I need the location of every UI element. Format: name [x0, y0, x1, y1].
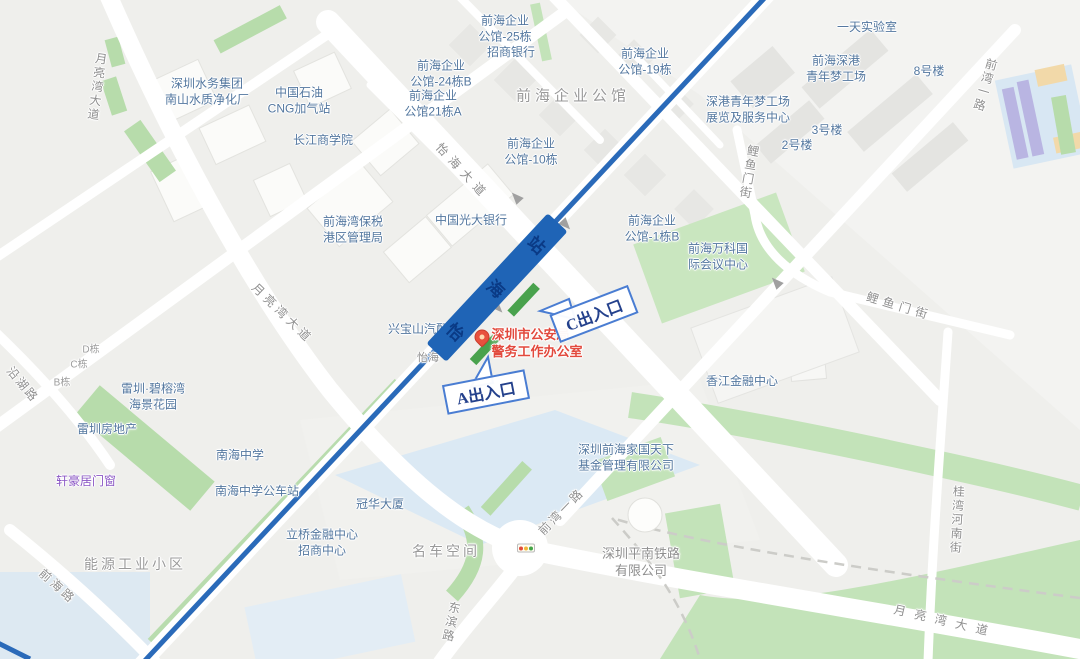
poi-dream-factory: 前海深港青年梦工场 [806, 53, 866, 84]
poi-everbright-bank: 中国光大银行 [435, 213, 507, 229]
poi-ckgsb: 长江商学院 [293, 133, 353, 149]
poi-pingnan-railway: 深圳平南铁路有限公司 [602, 546, 680, 580]
poi-bldg8: 8号楼 [914, 64, 945, 80]
poi-xuanhao: 轩豪居门窗 [56, 474, 116, 490]
poi-lab: 一天实验室 [837, 20, 897, 36]
poi-gongguan-main: 前海企业公馆 [516, 86, 630, 106]
poi-gongguan1b: 前海企业公馆-1栋B [625, 213, 680, 244]
poi-guanhua: 冠华大厦 [356, 497, 404, 513]
poi-waterworks: 深圳水务集团南山水质净化厂 [165, 76, 249, 107]
poi-gongguan19: 前海企业公馆-19栋 [618, 46, 671, 77]
poi-gongguan24b: 前海企业公馆-24栋B [410, 58, 471, 89]
poi-vanke-center: 前海万科国际会议中心 [688, 241, 748, 272]
poi-cmb: 招商银行 [487, 45, 535, 61]
poi-leizhen-garden: 雷圳·碧榕湾海景花园 [121, 381, 185, 412]
poi-energy-zone: 能源工业小区 [84, 555, 186, 573]
poi-liqiao: 立桥金融中心招商中心 [286, 527, 358, 558]
poi-bldg2: 2号楼 [782, 138, 813, 154]
poi-cnpc: 中国石油CNG加气站 [268, 85, 331, 116]
building-round [628, 498, 662, 532]
map-container[interactable]: 怡海站 C出入口 A出入口 深圳市公安局警务工作办公室 深圳水务集团南山水质净化… [0, 0, 1080, 659]
poi-block-c: C栋 [70, 359, 87, 372]
poi-xiangjiang: 香江金融中心 [706, 374, 778, 390]
poi-mingche: 名车空间 [412, 542, 480, 560]
poi-dream-exhibit: 深港青年梦工场展览及服务中心 [706, 94, 790, 125]
label-yihai-fragment: 怡海 [417, 351, 439, 365]
poi-jiaguo-fund: 深圳前海家国天下基金管理有限公司 [578, 442, 674, 473]
traffic-light-icon [517, 544, 535, 553]
poi-block-b: B栋 [54, 377, 71, 390]
poi-gongguan25: 前海企业公馆-25栋 [478, 13, 531, 44]
poi-bldg3: 3号楼 [812, 123, 843, 139]
poi-block-d: D栋 [82, 344, 99, 357]
poi-gongguan10: 前海企业公馆-10栋 [504, 136, 557, 167]
poi-bonded-port: 前海湾保税港区管理局 [323, 214, 383, 245]
road-label-guiwan-henan: 桂湾河南街 [946, 485, 965, 556]
poi-nanhai-school: 南海中学 [216, 448, 264, 464]
poi-nanhai-busstop: 南海中学公车站 [215, 484, 299, 500]
poi-gongguan21a: 前海企业公馆21栋A [404, 88, 461, 119]
poi-leizhen-realty: 雷圳房地产 [77, 422, 137, 438]
